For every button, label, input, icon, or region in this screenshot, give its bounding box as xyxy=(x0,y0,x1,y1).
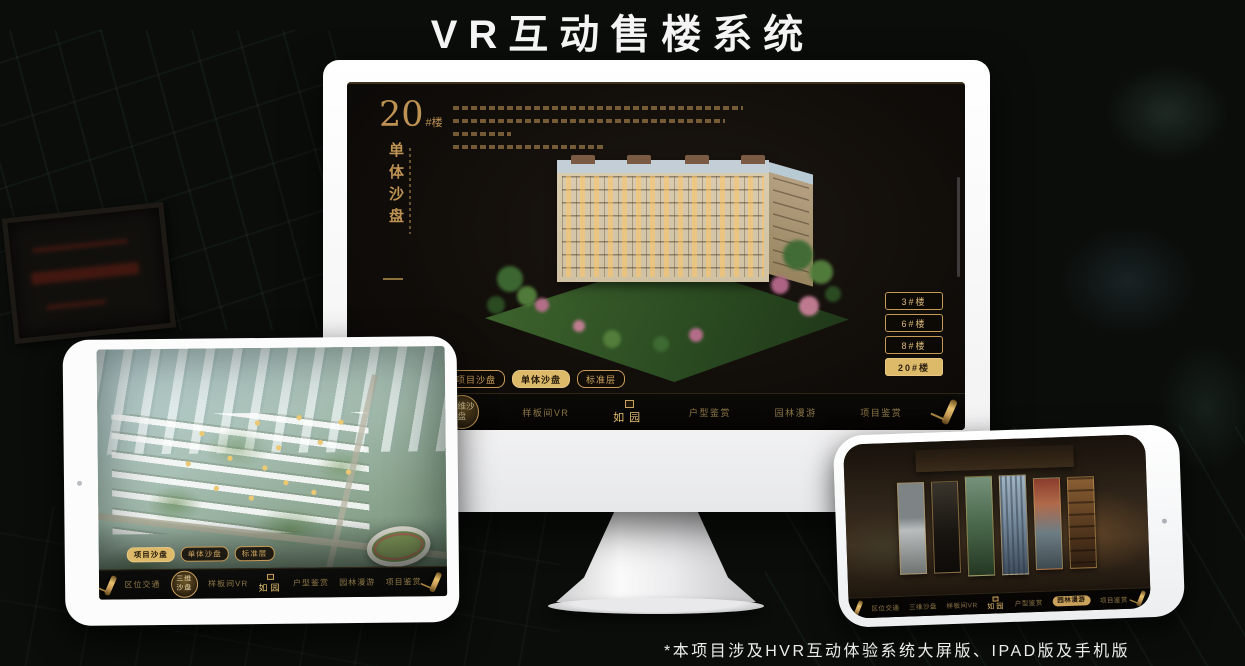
nav-item-showroom-vr[interactable]: 样板间VR xyxy=(522,406,569,419)
nav-item-3d-sandbox-active[interactable]: 三维沙盘 xyxy=(171,571,198,598)
vertical-title: 单体沙盘 xyxy=(385,142,406,230)
brand-logo: 如园 xyxy=(987,596,1006,612)
brand-logo-text: 如园 xyxy=(259,580,283,593)
roof-dormer xyxy=(685,155,709,164)
building-3d-scene[interactable] xyxy=(485,148,849,386)
screen-scrollbar[interactable] xyxy=(957,177,960,277)
seal-icon xyxy=(267,573,274,579)
residential-building-model xyxy=(557,160,769,282)
scroll-menu-icon[interactable] xyxy=(104,574,117,595)
tablet-tab-standard-floor[interactable]: 标准层 xyxy=(235,546,275,561)
brand-logo-text: 如园 xyxy=(613,409,645,425)
background-plaque xyxy=(2,202,176,344)
building-number-suffix: #楼 xyxy=(426,117,443,129)
nav-item-unit-appreciation[interactable]: 户型鉴赏 xyxy=(689,406,731,419)
gallery-card[interactable] xyxy=(897,482,927,575)
gallery-card[interactable] xyxy=(1033,477,1063,570)
sand-table-tabs: 项目沙盘 单体沙盘 标准层 xyxy=(447,370,625,388)
tab-standard-floor[interactable]: 标准层 xyxy=(577,370,625,388)
tab-single-sandbox-selected[interactable]: 单体沙盘 xyxy=(512,370,570,388)
footnote-text: *本项目涉及HVR互动体验系统大屏版、IPAD版及手机版 xyxy=(664,637,1130,661)
brand-logo: 如园 xyxy=(258,573,282,593)
gallery-card[interactable] xyxy=(1067,476,1097,569)
gallery-card[interactable] xyxy=(931,481,961,574)
scroll-menu-icon[interactable] xyxy=(1136,590,1146,607)
tablet-bottom-nav: 区位交通 三维沙盘 样板间VR 如园 户型鉴赏 园林漫游 项目鉴赏 xyxy=(99,566,447,600)
brand-logo-text: 如园 xyxy=(987,601,1005,612)
showcase-canvas: VR互动售楼系统 *本项目涉及HVR互动体验系统大屏版、IPAD版及手机版 20… xyxy=(0,0,1245,666)
tablet-mockup: 项目沙盘 单体沙盘 标准层 区位交通 三维沙盘 样板间VR 如园 户型鉴赏 园林… xyxy=(63,336,460,626)
building-number: 20 xyxy=(379,95,424,135)
nav-item-garden-roam[interactable]: 园林漫游 xyxy=(339,577,375,588)
vertical-title-underline xyxy=(383,278,403,280)
nav-item-location-traffic[interactable]: 区位交通 xyxy=(871,602,899,613)
nav-item-unit-appreciation[interactable]: 户型鉴赏 xyxy=(293,577,329,588)
brand-logo: 如园 xyxy=(613,400,645,425)
screen-top-rule xyxy=(347,82,965,84)
nav-item-project-appreciation[interactable]: 项目鉴赏 xyxy=(1100,594,1128,605)
scroll-menu-icon[interactable] xyxy=(429,571,442,592)
scroll-menu-icon[interactable] xyxy=(853,600,863,617)
vertical-title-caption-line xyxy=(409,148,411,234)
nav-item-3d-sandbox[interactable]: 三维沙盘 xyxy=(909,601,937,612)
nav-item-showroom-vr[interactable]: 样板间VR xyxy=(208,578,248,589)
tablet-camera-icon xyxy=(77,481,82,486)
tablet-tab-project-sandbox-selected[interactable]: 项目沙盘 xyxy=(127,547,175,563)
floor-button-group: 3#楼 6#楼 8#楼 20#楼 xyxy=(885,292,943,376)
floor-button-3[interactable]: 3#楼 xyxy=(885,292,943,310)
nav-item-project-appreciation[interactable]: 项目鉴赏 xyxy=(860,406,902,419)
tablet-tab-single-sandbox[interactable]: 单体沙盘 xyxy=(181,546,229,562)
roof-dormer xyxy=(741,155,765,164)
floor-button-6[interactable]: 6#楼 xyxy=(885,314,943,332)
building-front-facade xyxy=(557,160,769,282)
roof-dormer xyxy=(627,155,651,164)
gallery-card[interactable] xyxy=(965,476,995,577)
floor-button-20-selected[interactable]: 20#楼 xyxy=(885,358,943,376)
building-heading: 20#楼 xyxy=(379,98,443,133)
phone-camera-icon xyxy=(1162,518,1167,523)
scroll-menu-icon[interactable] xyxy=(941,399,958,426)
nav-item-unit-appreciation[interactable]: 户型鉴赏 xyxy=(1015,597,1043,608)
page-title: VR互动售楼系统 xyxy=(0,2,1245,60)
nav-item-showroom-vr[interactable]: 样板间VR xyxy=(946,599,977,610)
scene-gallery xyxy=(897,472,1097,579)
phone-mockup: 区位交通 三维沙盘 样板间VR 如园 户型鉴赏 园林漫游 项目鉴赏 xyxy=(833,424,1185,628)
nav-item-garden-roam[interactable]: 园林漫游 xyxy=(775,406,817,419)
nav-item-project-appreciation[interactable]: 项目鉴赏 xyxy=(386,576,422,587)
roof-dormer xyxy=(571,155,595,164)
background-photo-blobs xyxy=(985,50,1245,470)
seal-icon xyxy=(625,400,634,408)
tablet-screen: 项目沙盘 单体沙盘 标准层 区位交通 三维沙盘 样板间VR 如园 户型鉴赏 园林… xyxy=(97,346,448,600)
tablet-sand-table-tabs: 项目沙盘 单体沙盘 标准层 xyxy=(127,546,275,563)
nav-item-location-traffic[interactable]: 区位交通 xyxy=(124,579,160,590)
nav-item-garden-roam-active[interactable]: 园林漫游 xyxy=(1052,595,1090,607)
floor-button-8[interactable]: 8#楼 xyxy=(885,336,943,354)
gallery-card[interactable] xyxy=(999,474,1029,575)
monitor-stand-base xyxy=(548,598,764,614)
phone-screen: 区位交通 三维沙盘 样板间VR 如园 户型鉴赏 园林漫游 项目鉴赏 xyxy=(843,434,1151,618)
